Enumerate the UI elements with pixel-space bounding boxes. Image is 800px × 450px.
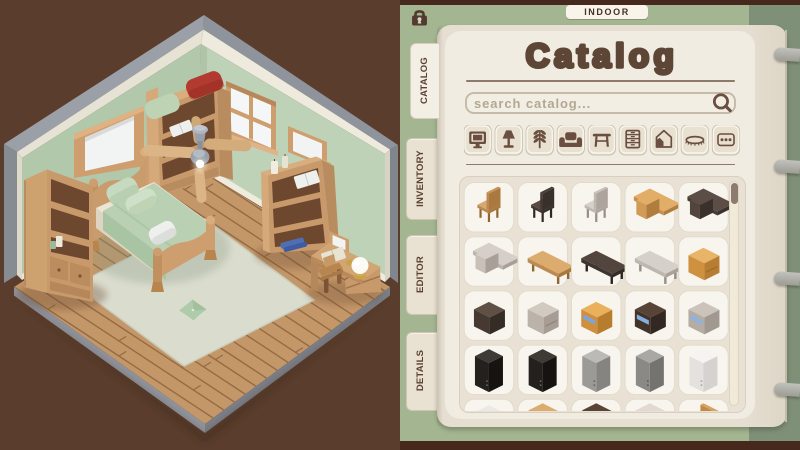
svg-text:Catalog: Catalog	[526, 37, 679, 74]
